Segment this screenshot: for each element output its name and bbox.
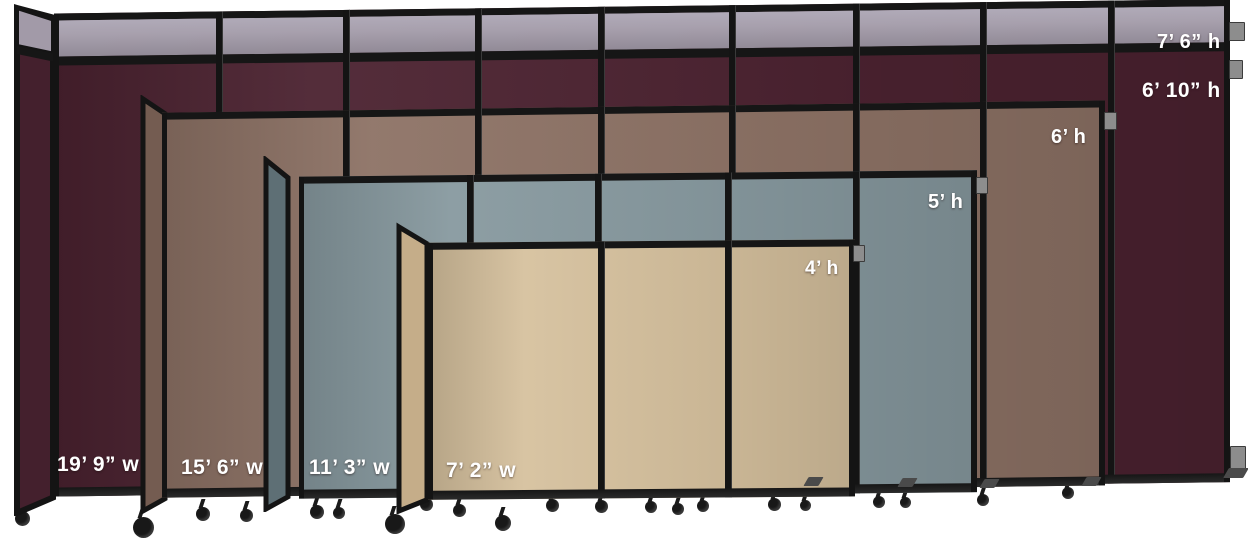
height-label-6ft10: 6’ 10” h xyxy=(1142,79,1221,103)
wall-bracket xyxy=(1230,446,1246,470)
hinge-bracket xyxy=(1104,112,1117,130)
frame-rail xyxy=(433,239,849,249)
wall-bracket xyxy=(1229,22,1245,41)
frame-rail xyxy=(433,487,849,499)
caster-wheel xyxy=(385,514,405,534)
hinge-bracket xyxy=(853,245,865,262)
product-size-comparison: 7’ 6” h 6’ 10” h 6’ h 5’ h 4’ h 19’ 9” w… xyxy=(0,0,1248,542)
frame-post xyxy=(1108,1,1115,484)
frame-post xyxy=(980,102,987,487)
frame-post xyxy=(598,241,605,498)
wall-bracket xyxy=(1229,60,1243,79)
return-panel xyxy=(14,1,56,516)
frame-rail xyxy=(167,100,1099,119)
height-label-5ft: 5’ h xyxy=(928,191,963,214)
height-label-6ft: 6’ h xyxy=(1051,126,1086,149)
caster-wheel xyxy=(495,515,511,531)
width-label-19ft9: 19’ 9” w xyxy=(57,453,139,477)
return-panel xyxy=(263,156,291,512)
frame-rail xyxy=(304,170,971,183)
caster-wheel xyxy=(133,517,154,538)
width-label-7ft2: 7’ 2” w xyxy=(446,459,516,483)
width-label-15ft6: 15’ 6” w xyxy=(181,456,263,480)
hinge-bracket xyxy=(976,177,988,194)
frame-post xyxy=(725,240,732,497)
return-panel xyxy=(396,222,430,514)
height-label-7ft6: 7’ 6” h xyxy=(1157,31,1221,54)
width-label-11ft3: 11’ 3” w xyxy=(309,456,390,480)
height-label-4ft: 4’ h xyxy=(805,258,839,280)
support-foot xyxy=(1223,468,1248,478)
